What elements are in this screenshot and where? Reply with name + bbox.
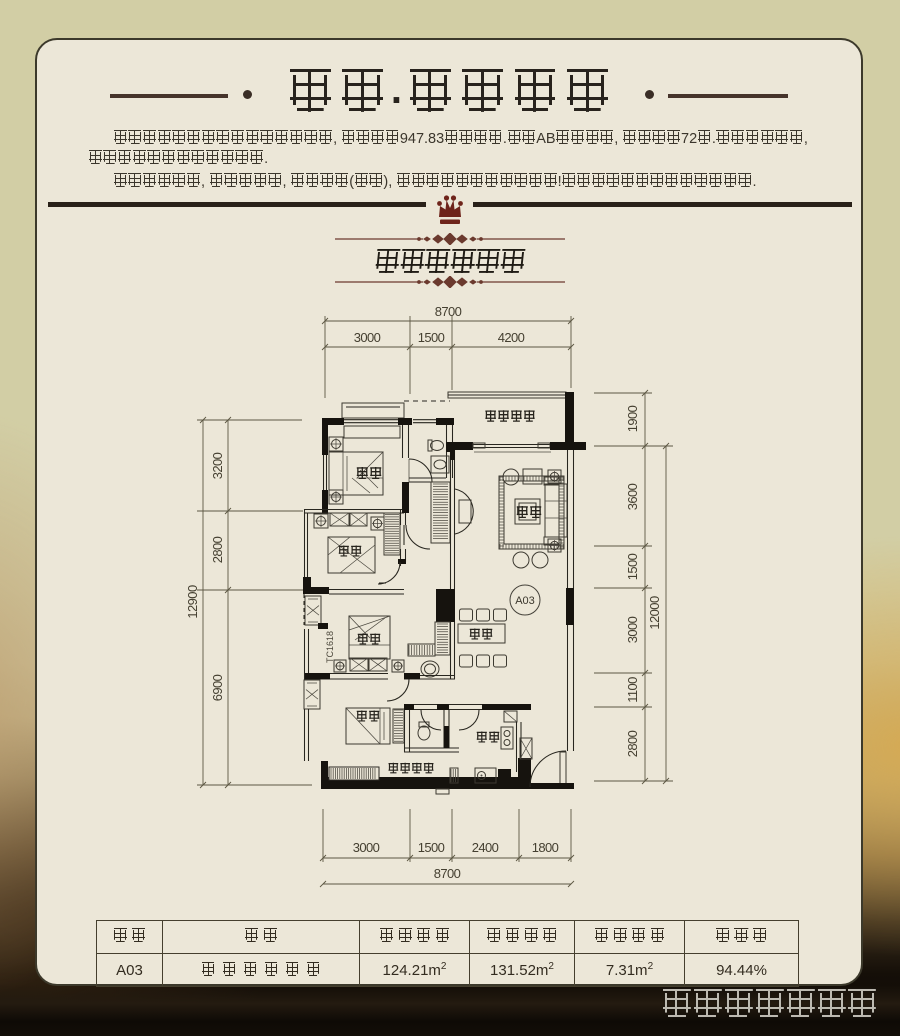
- svg-text:1500: 1500: [418, 840, 445, 855]
- svg-text:1100: 1100: [625, 677, 640, 703]
- svg-text:2400: 2400: [472, 840, 499, 855]
- svg-text:TC1618: TC1618: [325, 631, 335, 663]
- svg-text:1900: 1900: [625, 405, 640, 432]
- svg-text:A03: A03: [515, 595, 535, 607]
- svg-text:3000: 3000: [353, 840, 380, 855]
- svg-text:3200: 3200: [210, 452, 225, 479]
- svg-text:3000: 3000: [354, 330, 381, 345]
- svg-text:8700: 8700: [434, 866, 461, 881]
- svg-text:3600: 3600: [625, 483, 640, 510]
- svg-text:12000: 12000: [647, 596, 662, 630]
- svg-text:1500: 1500: [625, 553, 640, 580]
- svg-text:3000: 3000: [625, 616, 640, 643]
- svg-text:2800: 2800: [210, 536, 225, 563]
- svg-text:4200: 4200: [498, 330, 525, 345]
- svg-text:1500: 1500: [418, 330, 445, 345]
- svg-text:2800: 2800: [625, 730, 640, 757]
- svg-text:1800: 1800: [532, 840, 559, 855]
- svg-text:8700: 8700: [435, 304, 462, 319]
- svg-text:6900: 6900: [210, 674, 225, 701]
